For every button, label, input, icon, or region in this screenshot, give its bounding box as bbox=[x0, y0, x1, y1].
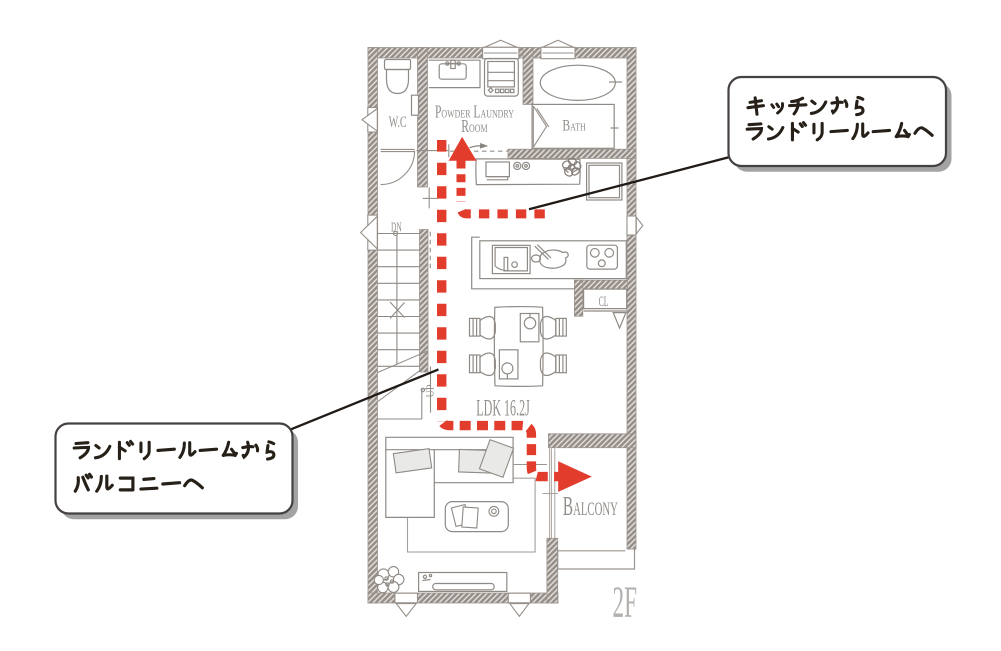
svg-text:Balcony: Balcony bbox=[563, 491, 618, 521]
svg-text:W.C: W.C bbox=[389, 114, 407, 131]
svg-text:Bath: Bath bbox=[562, 118, 585, 135]
svg-text:Room: Room bbox=[461, 116, 488, 136]
svg-text:CL: CL bbox=[599, 294, 609, 310]
svg-text:2F: 2F bbox=[613, 578, 638, 627]
svg-text:UP: UP bbox=[425, 385, 437, 398]
svg-text:LDK 16.2J: LDK 16.2J bbox=[476, 395, 530, 420]
svg-text:DN: DN bbox=[391, 219, 402, 234]
